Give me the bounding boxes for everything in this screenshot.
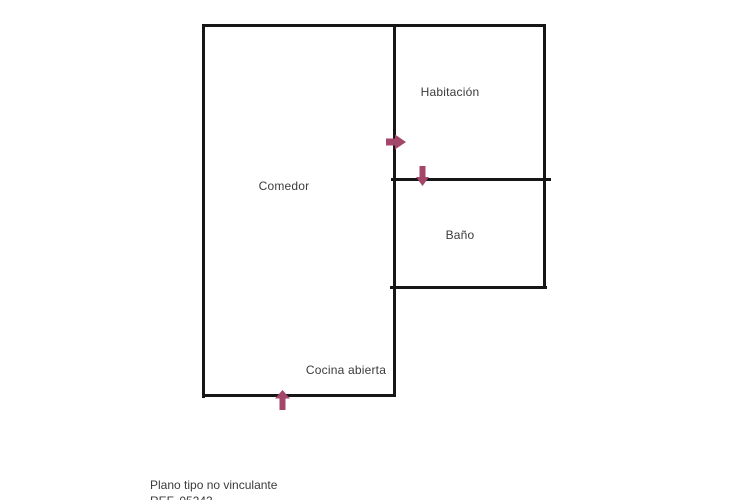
wall-top — [202, 24, 546, 27]
door-arrow-right-shape — [386, 135, 406, 150]
wall-right — [543, 24, 546, 289]
door-arrow-right-icon — [386, 134, 406, 150]
floor-plan: Comedor Habitación Baño Cocina abierta P… — [0, 0, 750, 500]
plan-disclaimer: Plano tipo no vinculante — [150, 477, 277, 493]
wall-divider-vertical — [393, 24, 396, 397]
room-label-comedor: Comedor — [259, 179, 310, 193]
room-label-habitacion: Habitación — [421, 85, 480, 99]
door-arrow-down-shape — [416, 166, 429, 186]
entrance-arrow-up-icon — [275, 390, 290, 410]
wall-bottom-comedor — [202, 394, 396, 397]
room-label-bano: Baño — [446, 228, 475, 242]
plan-reference: REF. 05243 — [150, 493, 277, 500]
entrance-arrow-up-shape — [275, 390, 290, 410]
wall-habitacion-bano — [391, 178, 551, 181]
wall-bano-bottom — [390, 286, 547, 289]
room-label-cocina-abierta: Cocina abierta — [306, 363, 386, 377]
wall-left — [202, 24, 205, 398]
door-arrow-down-icon — [416, 166, 429, 186]
plan-footer: Plano tipo no vinculante REF. 05243 — [150, 477, 277, 500]
